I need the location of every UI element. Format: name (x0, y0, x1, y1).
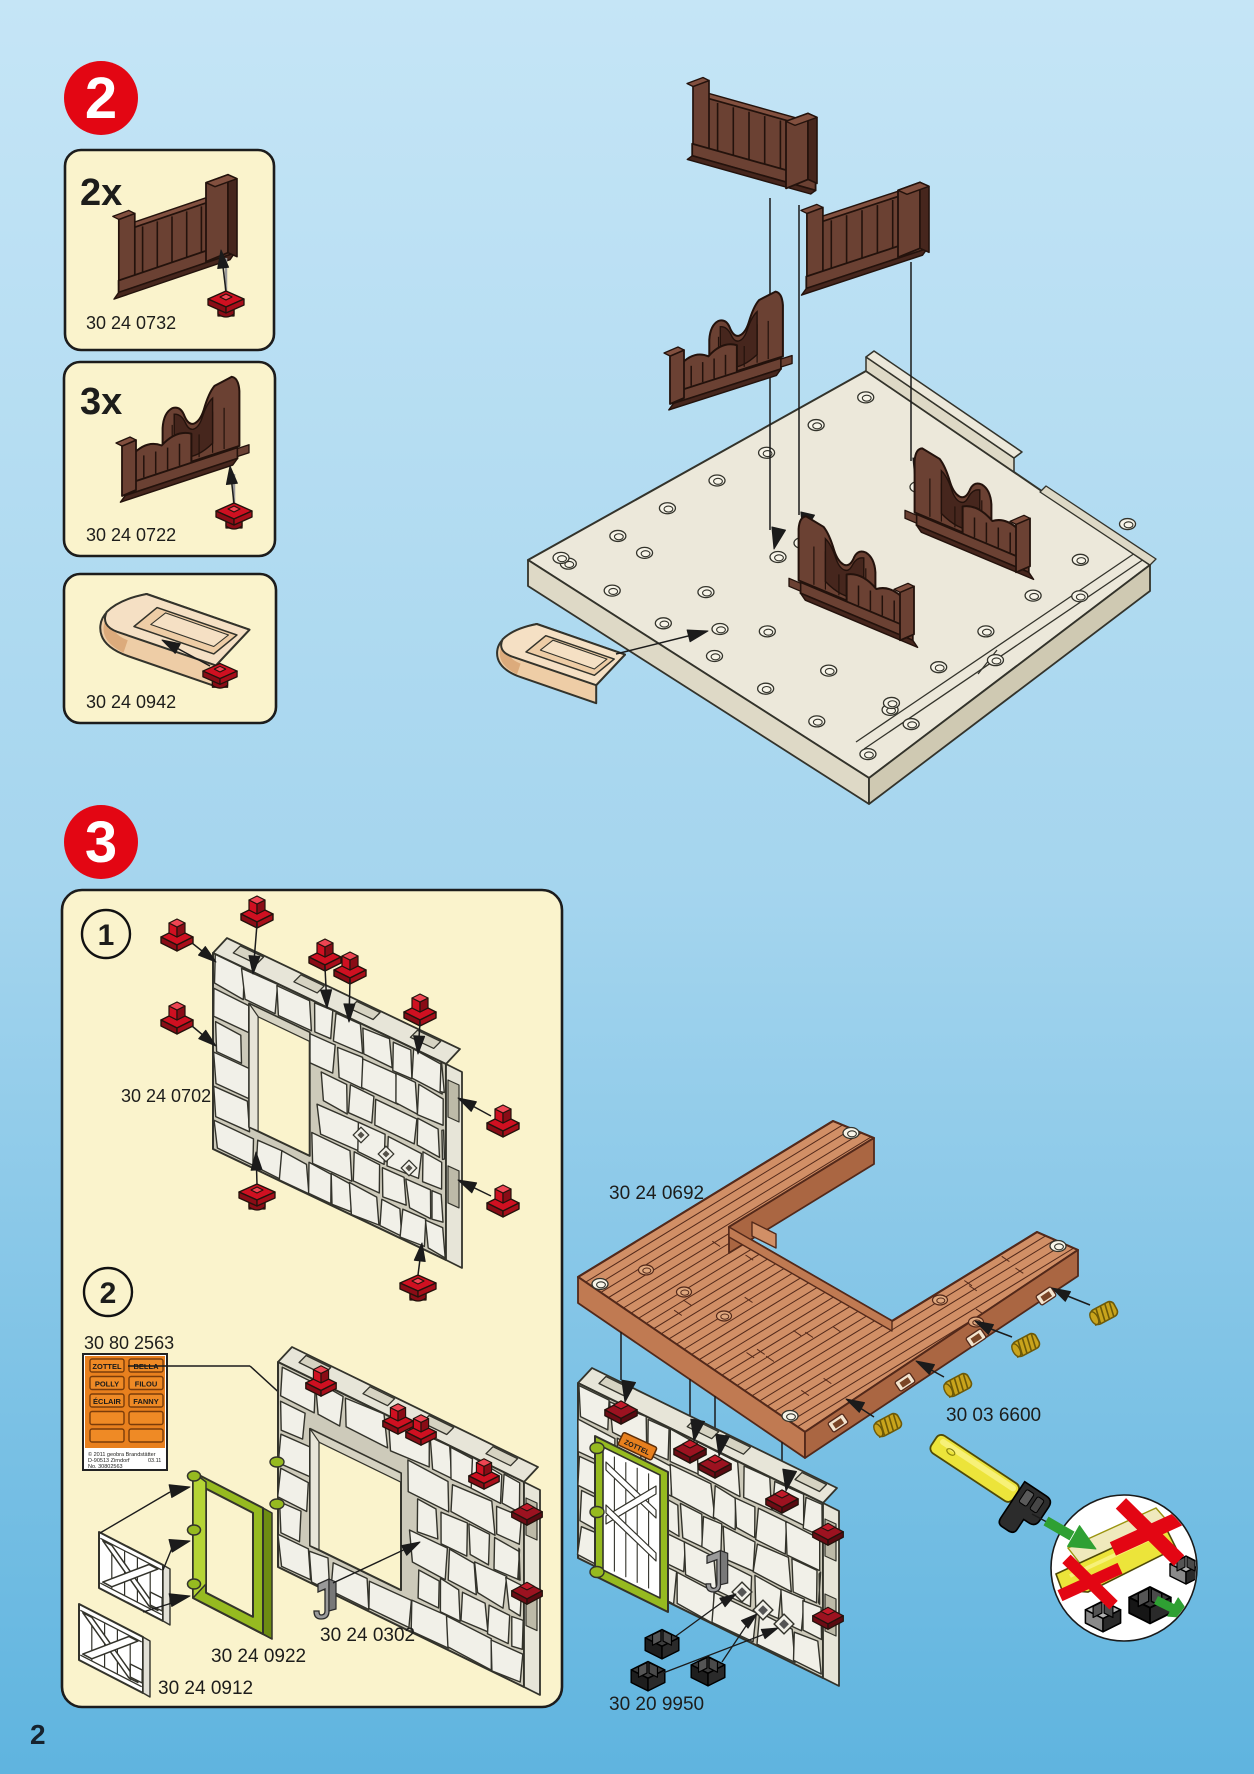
svg-text:2x: 2x (80, 172, 122, 214)
svg-text:FILOU: FILOU (135, 1380, 158, 1389)
svg-text:© 2011 geobra Brandstätter: © 2011 geobra Brandstätter (88, 1451, 156, 1458)
svg-text:POLLY: POLLY (95, 1380, 119, 1389)
svg-text:30 24 0702: 30 24 0702 (121, 1086, 211, 1106)
svg-text:1: 1 (98, 919, 115, 952)
svg-text:30 20 9950: 30 20 9950 (609, 1694, 704, 1715)
svg-text:03.11: 03.11 (148, 1458, 161, 1464)
svg-text:30 24 0692: 30 24 0692 (609, 1183, 704, 1204)
svg-text:30 24 0722: 30 24 0722 (86, 525, 176, 545)
svg-text:30 03 6600: 30 03 6600 (946, 1405, 1041, 1426)
svg-text:30 24 0922: 30 24 0922 (211, 1646, 306, 1667)
svg-text:30 24 0942: 30 24 0942 (86, 692, 176, 712)
svg-text:30 24 0302: 30 24 0302 (320, 1625, 415, 1646)
svg-text:30 80 2563: 30 80 2563 (84, 1333, 174, 1353)
svg-text:30 24 0912: 30 24 0912 (158, 1678, 253, 1699)
svg-text:FANNY: FANNY (133, 1397, 158, 1406)
svg-text:30 24 0732: 30 24 0732 (86, 313, 176, 333)
svg-text:ÉCLAIR: ÉCLAIR (93, 1397, 122, 1406)
svg-text:ZOTTEL: ZOTTEL (92, 1362, 122, 1371)
svg-text:No. 30802563: No. 30802563 (88, 1464, 123, 1470)
svg-text:2: 2 (30, 1719, 46, 1750)
svg-text:3: 3 (85, 810, 117, 875)
svg-text:2: 2 (100, 1277, 117, 1310)
svg-text:2: 2 (85, 66, 117, 131)
svg-text:3x: 3x (80, 381, 122, 423)
